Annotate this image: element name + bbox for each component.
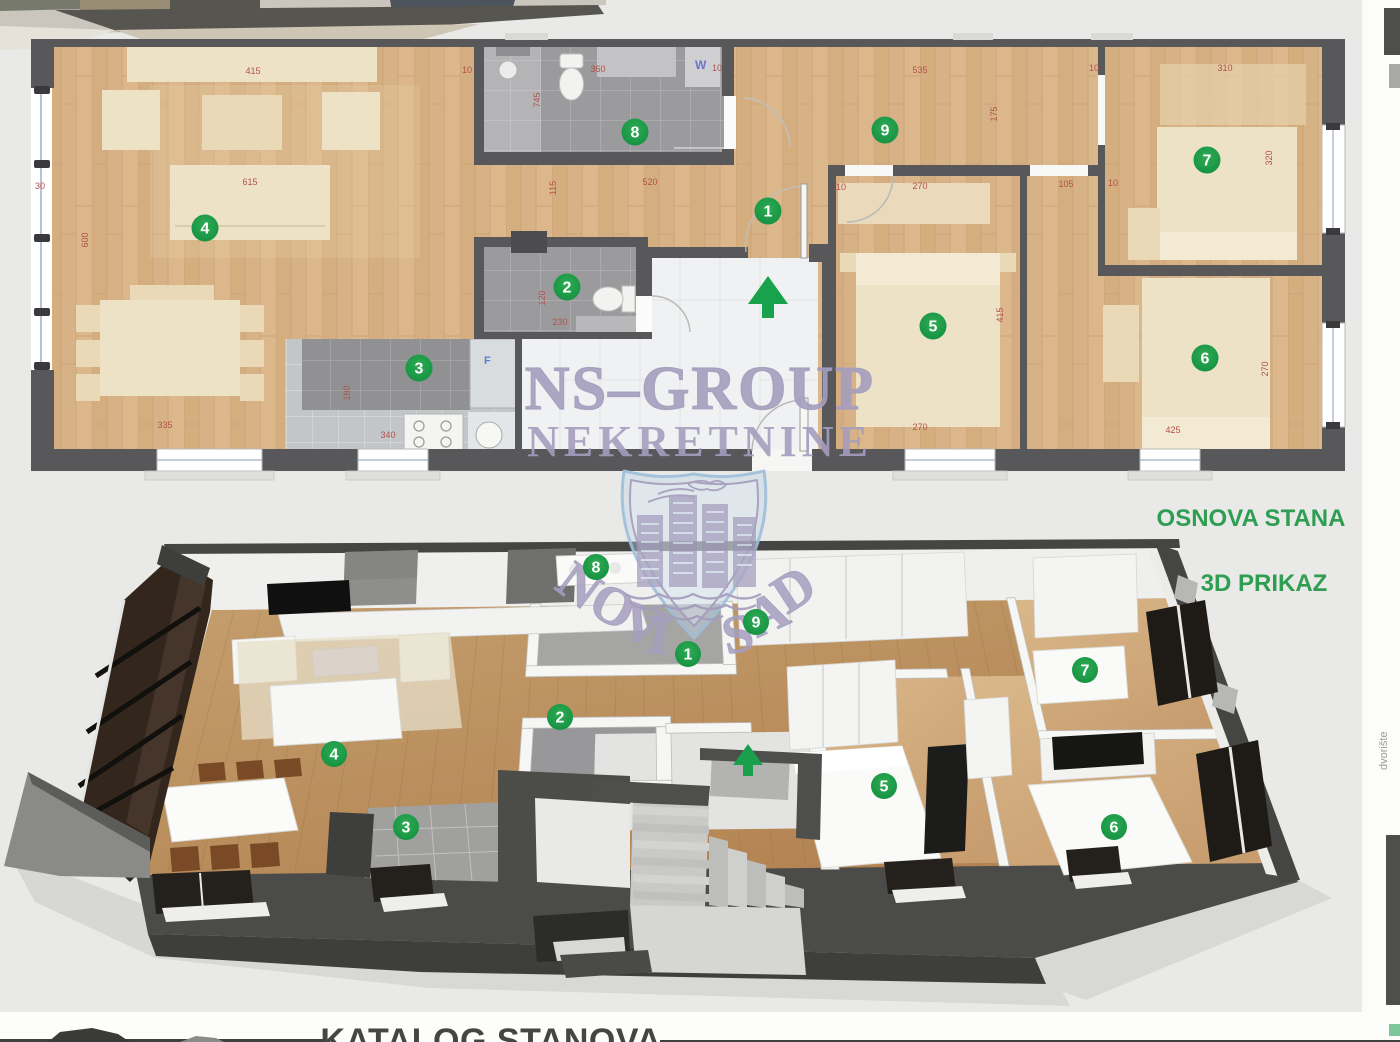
svg-text:415: 415 <box>995 307 1005 322</box>
svg-text:425: 425 <box>1165 425 1180 435</box>
svg-text:320: 320 <box>1264 150 1274 165</box>
svg-text:115: 115 <box>548 181 558 195</box>
svg-text:310: 310 <box>1217 63 1232 73</box>
svg-text:230: 230 <box>552 317 567 327</box>
svg-text:KATALOG STANOVA: KATALOG STANOVA <box>320 1022 661 1042</box>
svg-text:1: 1 <box>764 204 773 221</box>
svg-text:dvorište: dvorište <box>1378 731 1390 770</box>
svg-text:9: 9 <box>752 615 761 632</box>
svg-text:745: 745 <box>532 92 542 107</box>
svg-text:6: 6 <box>1201 351 1210 368</box>
svg-text:10: 10 <box>462 65 472 75</box>
svg-text:30: 30 <box>35 181 45 191</box>
svg-text:5: 5 <box>929 319 938 336</box>
svg-text:360: 360 <box>590 64 605 74</box>
svg-text:4: 4 <box>330 747 339 764</box>
svg-text:600: 600 <box>80 232 90 247</box>
svg-text:7: 7 <box>1203 153 1212 170</box>
svg-text:180: 180 <box>342 385 352 400</box>
svg-text:270: 270 <box>1260 361 1270 376</box>
svg-text:535: 535 <box>912 65 927 75</box>
svg-text:10: 10 <box>712 63 722 73</box>
svg-text:10: 10 <box>1089 63 1099 73</box>
svg-text:NS–GROUP: NS–GROUP <box>525 355 875 423</box>
svg-text:105: 105 <box>1058 179 1073 189</box>
svg-text:3D PRIKAZ: 3D PRIKAZ <box>1201 570 1328 597</box>
svg-text:270: 270 <box>912 422 927 432</box>
svg-text:7: 7 <box>1081 663 1090 680</box>
svg-text:10: 10 <box>836 182 846 192</box>
svg-text:4: 4 <box>201 221 210 238</box>
svg-text:270: 270 <box>912 181 927 191</box>
svg-text:3: 3 <box>415 361 424 378</box>
svg-text:175: 175 <box>989 106 999 121</box>
svg-text:10: 10 <box>1108 178 1118 188</box>
svg-text:W: W <box>695 58 707 72</box>
svg-text:1: 1 <box>684 647 693 664</box>
svg-text:415: 415 <box>245 66 260 76</box>
svg-text:6: 6 <box>1110 820 1119 837</box>
svg-text:NEKRETNINE: NEKRETNINE <box>527 417 873 466</box>
svg-text:5: 5 <box>880 779 889 796</box>
svg-text:520: 520 <box>642 177 657 187</box>
svg-text:2: 2 <box>563 280 572 297</box>
svg-text:8: 8 <box>631 125 640 142</box>
svg-text:OSNOVA STANA: OSNOVA STANA <box>1157 505 1346 532</box>
svg-text:335: 335 <box>157 420 172 430</box>
svg-text:615: 615 <box>242 177 257 187</box>
svg-text:F: F <box>484 355 491 367</box>
svg-text:2: 2 <box>556 710 565 727</box>
svg-text:340: 340 <box>380 430 395 440</box>
svg-text:9: 9 <box>881 123 890 140</box>
svg-text:120: 120 <box>537 290 547 305</box>
svg-text:8: 8 <box>592 560 601 577</box>
svg-text:3: 3 <box>402 820 411 837</box>
